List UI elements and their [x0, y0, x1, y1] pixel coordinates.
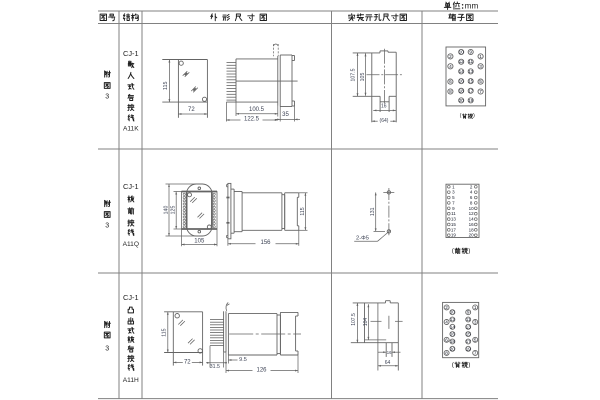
svg-text:14: 14 — [450, 324, 456, 329]
svg-text:1: 1 — [479, 54, 482, 59]
svg-text:5: 5 — [479, 79, 482, 84]
svg-text:140: 140 — [163, 206, 169, 215]
svg-text:8: 8 — [449, 89, 452, 94]
svg-text:64: 64 — [385, 360, 391, 366]
svg-text:4: 4 — [449, 64, 452, 69]
svg-text:15: 15 — [451, 222, 457, 227]
svg-text:122.5: 122.5 — [244, 116, 260, 122]
svg-text:19: 19 — [468, 98, 474, 103]
svg-text:10: 10 — [469, 206, 475, 211]
svg-text:A11Q: A11Q — [123, 241, 139, 248]
svg-text:(: ( — [460, 113, 462, 119]
svg-text:19: 19 — [451, 233, 457, 238]
svg-text:14: 14 — [469, 217, 475, 222]
svg-text:2: 2 — [449, 54, 452, 59]
svg-text:13: 13 — [466, 324, 472, 329]
svg-text:16: 16 — [381, 104, 387, 110]
svg-text:35: 35 — [282, 112, 289, 118]
svg-text:3: 3 — [479, 64, 482, 69]
svg-text:12: 12 — [459, 59, 465, 64]
svg-text:1: 1 — [474, 305, 477, 310]
svg-text:20: 20 — [459, 98, 465, 103]
svg-text:105: 105 — [360, 73, 366, 82]
svg-text:12: 12 — [469, 211, 475, 216]
svg-text:19: 19 — [466, 346, 472, 351]
svg-text:13: 13 — [451, 217, 457, 222]
svg-text:126: 126 — [256, 367, 267, 373]
svg-text:3: 3 — [105, 346, 109, 353]
svg-text:9.5: 9.5 — [239, 357, 247, 363]
svg-text:12: 12 — [450, 317, 456, 322]
svg-text:3: 3 — [105, 223, 109, 230]
svg-text:131: 131 — [370, 207, 376, 216]
svg-text:mm: mm — [465, 1, 479, 10]
svg-text:20: 20 — [469, 233, 475, 238]
svg-text:18: 18 — [450, 339, 456, 344]
svg-text:72: 72 — [188, 107, 195, 113]
svg-text:3: 3 — [474, 320, 477, 325]
svg-text:31.5: 31.5 — [210, 364, 220, 370]
svg-text:CJ-1: CJ-1 — [123, 182, 139, 191]
svg-text:3: 3 — [105, 94, 109, 101]
svg-text:2-Φ5: 2-Φ5 — [356, 235, 369, 241]
svg-text:10: 10 — [450, 310, 456, 315]
svg-text:17: 17 — [468, 88, 474, 93]
svg-text:115: 115 — [162, 328, 168, 336]
svg-text:18: 18 — [469, 227, 475, 232]
svg-text:11: 11 — [468, 59, 473, 64]
svg-text:9: 9 — [469, 50, 472, 55]
svg-text:): ) — [473, 113, 475, 119]
svg-text:14: 14 — [459, 69, 465, 74]
svg-text:CJ-1: CJ-1 — [123, 293, 139, 302]
svg-text:16: 16 — [459, 79, 465, 84]
svg-text:72: 72 — [184, 359, 191, 365]
svg-text:8: 8 — [445, 350, 448, 355]
svg-text:(64): (64) — [380, 118, 389, 124]
svg-text:): ) — [468, 362, 470, 369]
svg-text:5: 5 — [474, 337, 477, 342]
svg-text:7: 7 — [474, 350, 477, 355]
svg-text:10: 10 — [459, 50, 465, 55]
svg-text:15: 15 — [466, 332, 472, 337]
svg-text:20: 20 — [450, 346, 456, 351]
svg-text:105: 105 — [194, 239, 205, 245]
svg-text:A11K: A11K — [123, 126, 139, 133]
svg-text:125: 125 — [171, 206, 177, 215]
svg-text:115: 115 — [163, 82, 169, 91]
svg-text:156: 156 — [260, 240, 271, 246]
svg-text:115: 115 — [300, 207, 306, 215]
svg-text:7: 7 — [479, 89, 482, 94]
svg-text:107.5: 107.5 — [351, 68, 357, 81]
svg-text:CJ-1: CJ-1 — [123, 49, 139, 58]
svg-text:16: 16 — [469, 222, 475, 227]
svg-text:6: 6 — [445, 337, 448, 342]
svg-text:18: 18 — [459, 88, 465, 93]
svg-text:16: 16 — [387, 350, 392, 355]
svg-text:13: 13 — [468, 69, 474, 74]
svg-text:9: 9 — [467, 310, 470, 315]
svg-text:6: 6 — [449, 79, 452, 84]
svg-text:17: 17 — [451, 227, 457, 232]
svg-text:2: 2 — [445, 305, 448, 310]
svg-text:A11H: A11H — [123, 377, 139, 384]
svg-text:107.5: 107.5 — [351, 313, 357, 326]
svg-text:17: 17 — [466, 339, 472, 344]
svg-text:4: 4 — [445, 320, 448, 325]
svg-text:11: 11 — [451, 211, 456, 216]
svg-text:): ) — [468, 248, 470, 255]
svg-text:104: 104 — [363, 318, 369, 327]
svg-text:15: 15 — [468, 79, 474, 84]
svg-text:11: 11 — [466, 317, 471, 322]
svg-text:16: 16 — [450, 332, 456, 337]
svg-text:100.5: 100.5 — [249, 107, 265, 113]
